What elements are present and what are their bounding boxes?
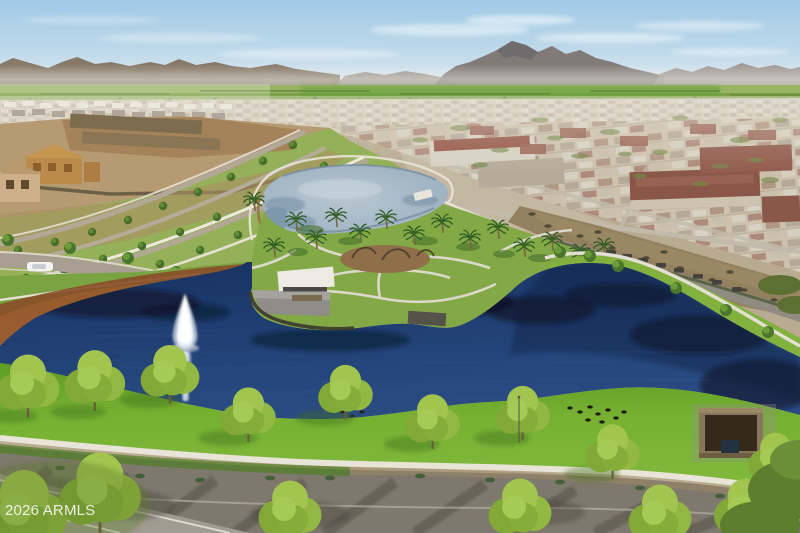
svg-text:2026 ARMLS: 2026 ARMLS [5, 502, 95, 519]
